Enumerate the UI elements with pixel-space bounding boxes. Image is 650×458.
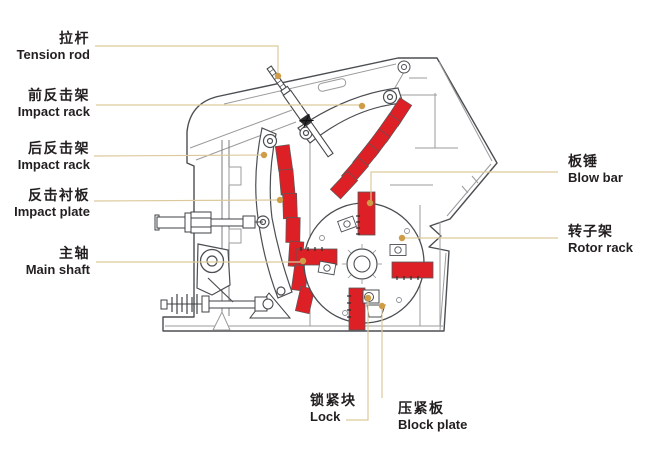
label-impact-plate-zh: 反击衬板 xyxy=(14,187,90,203)
dot-rear-rack xyxy=(261,152,267,158)
blow-bar-top xyxy=(358,192,375,235)
label-rotor-rack-zh: 转子架 xyxy=(568,223,633,239)
label-lock: 锁紧块 Lock xyxy=(310,392,357,424)
label-main-shaft: 主轴 Main shaft xyxy=(26,245,90,277)
label-rear-impact-rack-en: Impact rack xyxy=(18,157,90,172)
label-blow-bar-zh: 板锤 xyxy=(568,153,623,169)
leader-tension-rod xyxy=(95,46,278,74)
label-rear-impact-rack-zh: 后反击架 xyxy=(18,140,90,156)
crusher-line-drawing xyxy=(0,0,650,458)
impact-crusher-diagram: 拉杆 Tension rod 前反击架 Impact rack 后反击架 Imp… xyxy=(0,0,650,458)
label-lock-en: Lock xyxy=(310,409,357,424)
label-front-impact-rack: 前反击架 Impact rack xyxy=(18,87,90,119)
label-tension-rod: 拉杆 Tension rod xyxy=(17,30,90,62)
label-rotor-rack-en: Rotor rack xyxy=(568,240,633,255)
dot-lock xyxy=(365,295,371,301)
label-front-impact-rack-zh: 前反击架 xyxy=(18,87,90,103)
main-shaft-bore xyxy=(354,256,370,272)
dot-impact-plate xyxy=(277,197,283,203)
dot-tension-rod xyxy=(275,73,281,79)
label-block-plate-zh: 压紧板 xyxy=(398,400,467,416)
label-blow-bar: 板锤 Blow bar xyxy=(568,153,623,185)
dot-rotor-rack xyxy=(399,235,405,241)
dot-front-rack xyxy=(359,103,365,109)
label-main-shaft-en: Main shaft xyxy=(26,262,90,277)
label-block-plate: 压紧板 Block plate xyxy=(398,400,467,432)
dot-block-plate xyxy=(379,303,385,309)
label-impact-plate-en: Impact plate xyxy=(14,204,90,219)
label-impact-plate: 反击衬板 Impact plate xyxy=(14,187,90,219)
label-main-shaft-zh: 主轴 xyxy=(26,245,90,261)
label-tension-rod-en: Tension rod xyxy=(17,47,90,62)
dot-blow-bar xyxy=(367,200,373,206)
label-rotor-rack: 转子架 Rotor rack xyxy=(568,223,633,255)
dot-main-shaft xyxy=(300,258,306,264)
label-rear-impact-rack: 后反击架 Impact rack xyxy=(18,140,90,172)
blow-bar-right xyxy=(392,262,433,278)
label-blow-bar-en: Blow bar xyxy=(568,170,623,185)
label-front-impact-rack-en: Impact rack xyxy=(18,104,90,119)
label-block-plate-en: Block plate xyxy=(398,417,467,432)
label-lock-zh: 锁紧块 xyxy=(310,392,357,408)
label-tension-rod-zh: 拉杆 xyxy=(17,30,90,46)
